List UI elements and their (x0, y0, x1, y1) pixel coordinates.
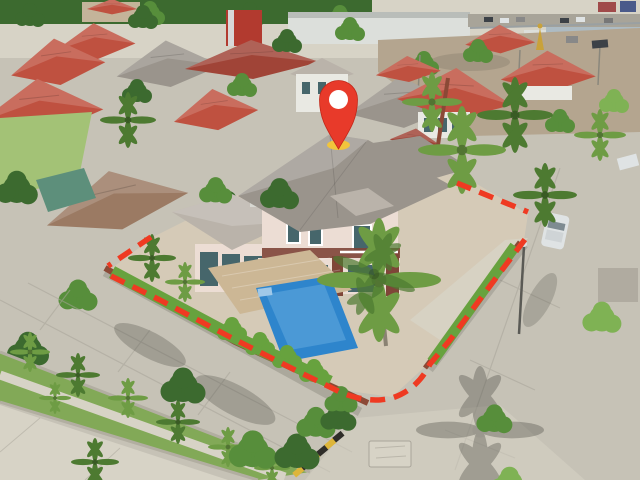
pin-inner-circle (329, 90, 348, 109)
manhole-panel (369, 441, 411, 467)
aerial-property-photo (0, 0, 640, 480)
billboard (598, 2, 616, 12)
parked-car (592, 39, 609, 48)
billboard (620, 1, 636, 12)
shed-roof (598, 268, 638, 302)
parked-car (566, 36, 578, 43)
